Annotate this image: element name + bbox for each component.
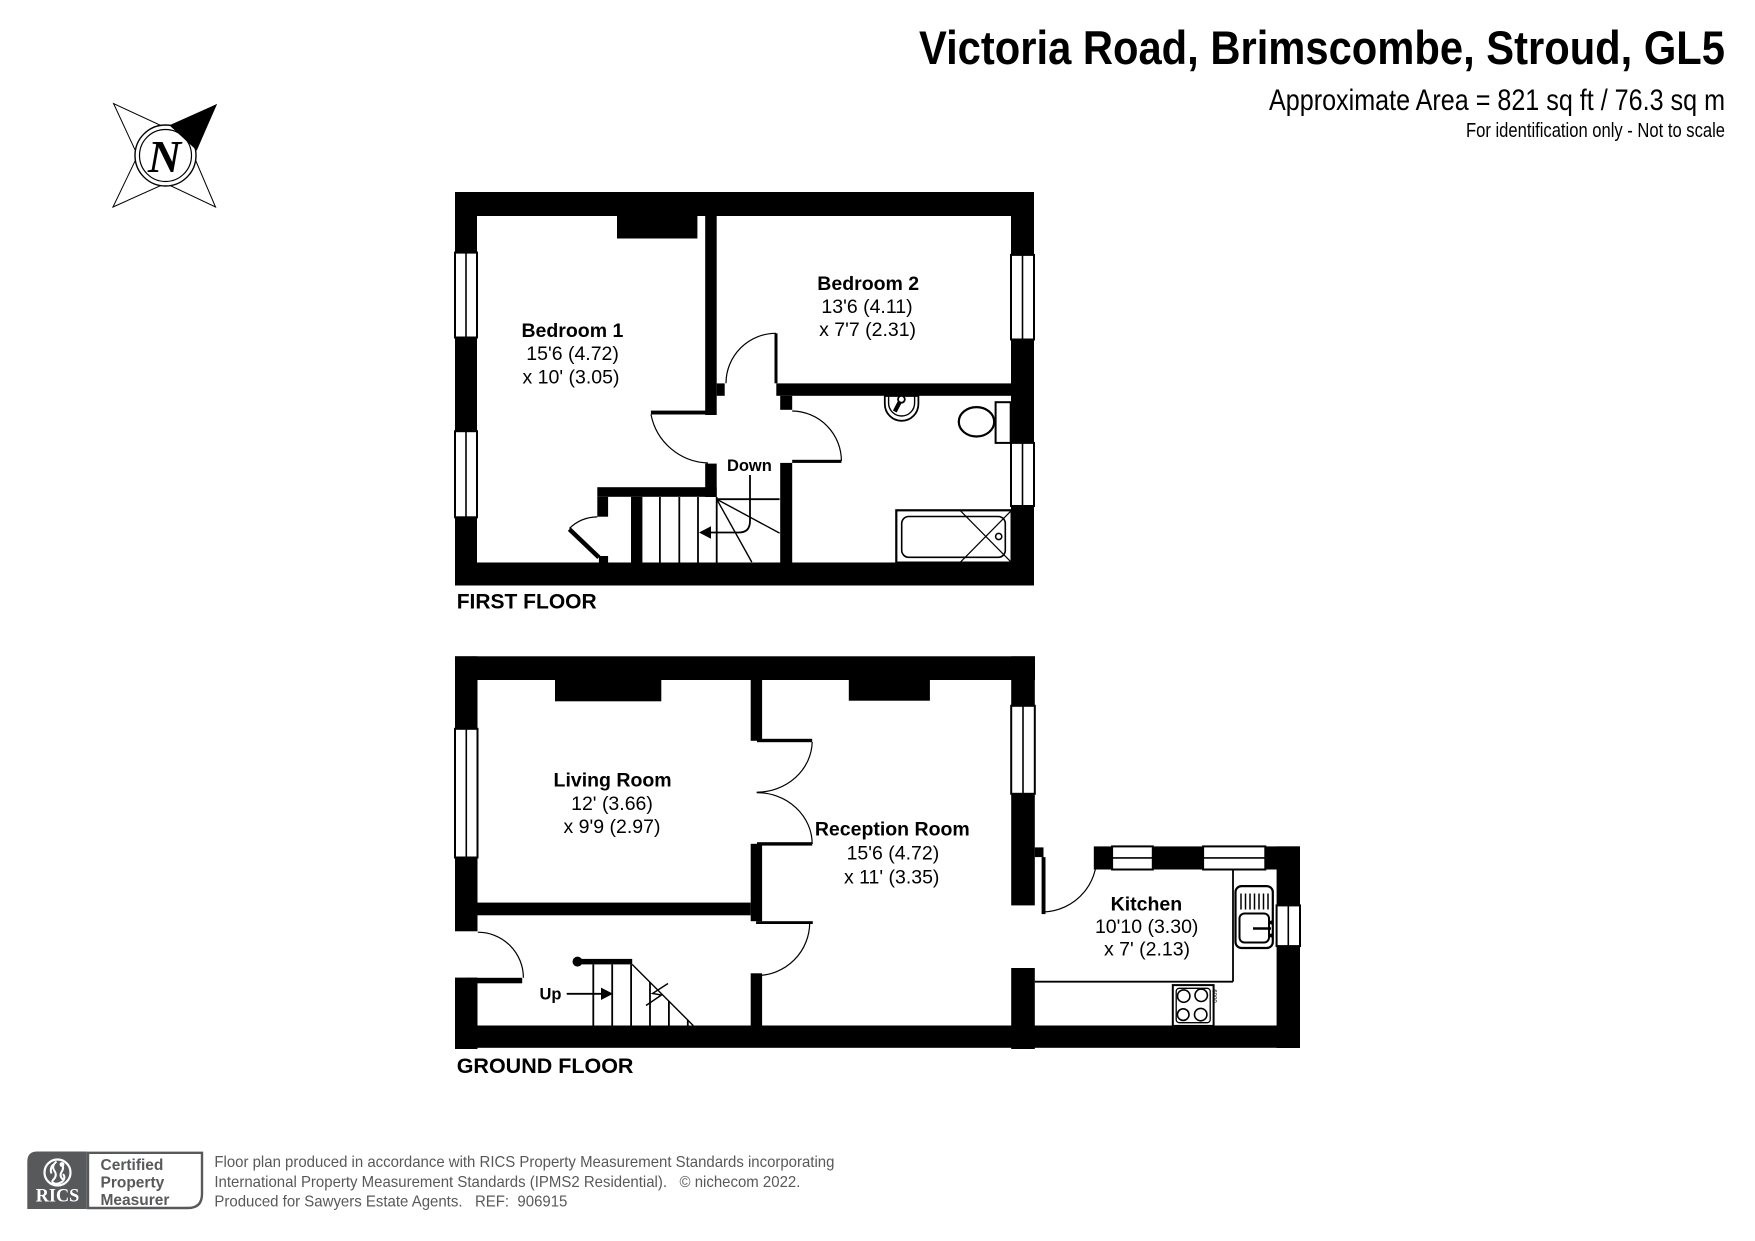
svg-text:13'6 (4.11): 13'6 (4.11): [821, 296, 912, 318]
svg-text:N: N: [147, 131, 183, 182]
svg-text:Living Room: Living Room: [554, 769, 672, 791]
svg-text:10'10 (3.30): 10'10 (3.30): [1095, 916, 1198, 938]
svg-text:FIRST FLOOR: FIRST FLOOR: [457, 591, 597, 614]
svg-text:RICS: RICS: [36, 1185, 80, 1206]
svg-text:x 11' (3.35): x 11' (3.35): [844, 867, 940, 889]
svg-text:Kitchen: Kitchen: [1111, 894, 1183, 916]
svg-text:GROUND FLOOR: GROUND FLOOR: [457, 1054, 634, 1078]
svg-text:15'6 (4.72): 15'6 (4.72): [526, 343, 619, 365]
svg-text:Reception Room: Reception Room: [815, 818, 970, 840]
svg-text:Produced for Sawyers Estate Ag: Produced for Sawyers Estate Agents. REF:…: [214, 1193, 567, 1210]
svg-text:For identification only - Not: For identification only - Not to scale: [1466, 120, 1725, 142]
svg-text:x 7' (2.13): x 7' (2.13): [1104, 939, 1190, 961]
svg-text:6000: 6000: [1211, 989, 1217, 1003]
svg-text:Bedroom 2: Bedroom 2: [817, 273, 919, 295]
svg-text:12' (3.66): 12' (3.66): [571, 793, 653, 815]
svg-text:x 9'9 (2.97): x 9'9 (2.97): [564, 816, 661, 838]
svg-text:x 10' (3.05): x 10' (3.05): [523, 367, 620, 389]
svg-text:x 7'7 (2.31): x 7'7 (2.31): [819, 319, 916, 341]
svg-text:Certified: Certified: [101, 1157, 164, 1174]
svg-text:Down: Down: [727, 457, 772, 475]
svg-text:Floor plan produced in accorda: Floor plan produced in accordance with R…: [214, 1154, 834, 1171]
svg-text:Bedroom 1: Bedroom 1: [521, 320, 623, 342]
svg-text:Up: Up: [540, 986, 562, 1004]
svg-text:Property: Property: [101, 1175, 165, 1192]
svg-text:International Property Measure: International Property Measurement Stand…: [214, 1174, 800, 1191]
svg-text:15'6 (4.72): 15'6 (4.72): [847, 843, 940, 865]
svg-text:Approximate Area = 821 sq ft /: Approximate Area = 821 sq ft / 76.3 sq m: [1269, 84, 1725, 117]
svg-text:Victoria Road, Brimscombe, Str: Victoria Road, Brimscombe, Stroud, GL5: [919, 21, 1725, 74]
svg-text:Measurer: Measurer: [101, 1192, 170, 1209]
